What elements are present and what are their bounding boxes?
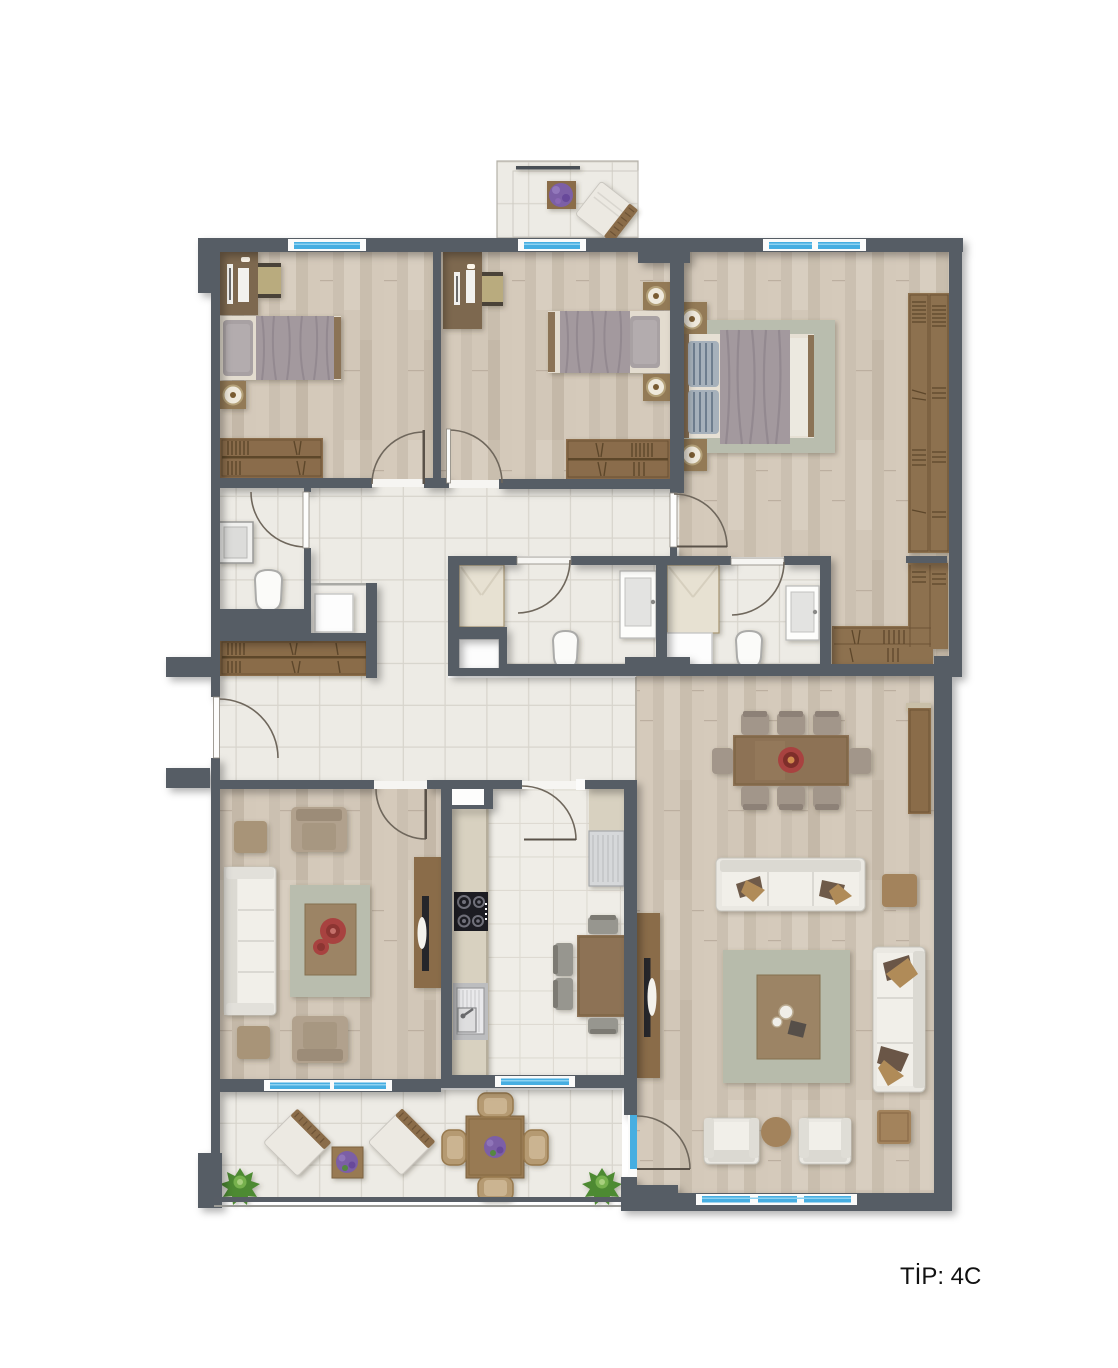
- svg-text:TİP: 4C: TİP: 4C: [900, 1263, 981, 1290]
